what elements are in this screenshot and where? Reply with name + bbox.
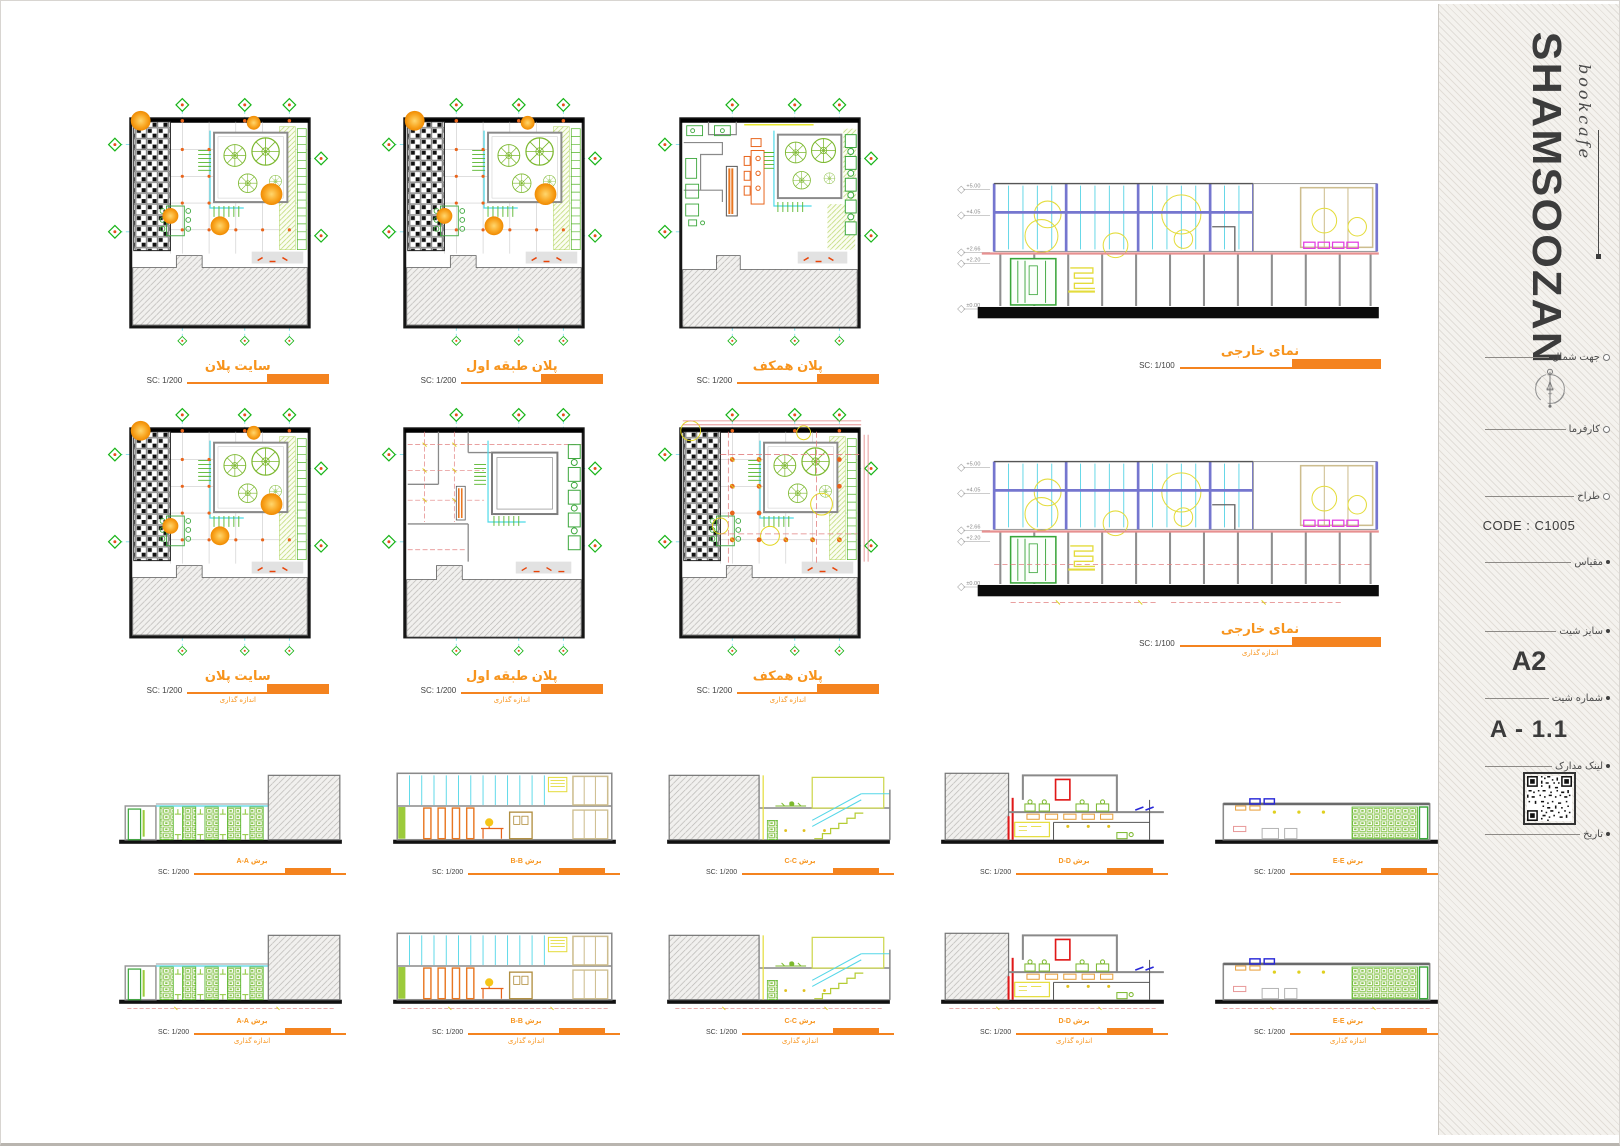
designer-code: CODE : C1005 [1439,518,1619,533]
caption-rule [468,868,620,875]
figure-scale: SC: 1/200 [432,1029,463,1036]
section-ee-drawing [1209,759,1444,853]
ground-floor-plan-dimensioned-drawing [653,405,881,663]
figure-subtitle: اندازه گذاری [158,1037,346,1045]
figure-scale: SC: 1/200 [706,1029,737,1036]
field-sheet-number: شماره شیت [1485,692,1610,704]
figure-title: برش C-C [706,1018,894,1027]
client-label: کارفرما [1569,424,1600,435]
figure-subtitle: اندازه گذاری [432,1037,620,1045]
figure-section-ee: برش E-E SC: 1/200 [1209,759,1444,875]
figure-scale: SC: 1/200 [697,376,733,385]
brand-script: bookcafe [1575,64,1594,161]
figure-title: برش D-D [980,1018,1168,1027]
figure-section-dd-dimensioned: برش D-D SC: 1/200 اندازه گذاری [935,919,1170,1045]
figure-caption: برش A-A SC: 1/200 [158,858,346,875]
title-block-sidebar: SHAMSOOZAN bookcafe جهت شمال کارفرما طرا… [1438,4,1619,1135]
figure-first-floor-plan: پلان طبقه اول SC: 1/200 [377,95,605,384]
caption-rule [1290,1028,1442,1035]
figure-caption: برش C-C SC: 1/200 [706,858,894,875]
caption-rule [468,1028,620,1035]
section-cc-drawing [661,759,896,853]
figure-title: برش D-D [980,858,1168,867]
figure-caption: برش D-D SC: 1/200 [980,858,1168,875]
figure-scale: SC: 1/200 [980,869,1011,876]
caption-rule [194,868,346,875]
figure-title: پلان همکف [697,668,879,684]
figure-subtitle: اندازه گذاری [421,696,603,704]
figure-scale: SC: 1/200 [147,686,183,695]
figure-section-aa: برش A-A SC: 1/200 [113,759,348,875]
figure-section-ee-dimensioned: برش E-E SC: 1/200 اندازه گذاری [1209,919,1444,1045]
figure-subtitle: اندازه گذاری [706,1037,894,1045]
site-plan-drawing [103,95,331,353]
field-designer: طراح [1485,490,1610,502]
figure-site-plan-dimensioned: سایت پلان SC: 1/200 اندازه گذاری [103,405,331,704]
field-client: کارفرما [1485,423,1610,435]
figure-scale: SC: 1/100 [1139,639,1175,648]
figure-caption: برش D-D SC: 1/200 اندازه گذاری [980,1018,1168,1045]
figure-scale: SC: 1/200 [432,869,463,876]
figure-caption: سایت پلان SC: 1/200 اندازه گذاری [147,668,329,704]
figure-first-floor-plan-dimensioned: پلان طبقه اول SC: 1/200 اندازه گذاری [377,405,605,704]
figure-caption: برش A-A SC: 1/200 اندازه گذاری [158,1018,346,1045]
ring-marker-icon [1603,493,1610,500]
section-ee-dimensioned-drawing [1209,919,1444,1013]
field-rule [1485,496,1574,497]
figure-ground-floor-plan-dimensioned: پلان همکف SC: 1/200 اندازه گذاری [653,405,881,704]
figure-caption: برش E-E SC: 1/200 [1254,858,1442,875]
caption-rule [742,868,894,875]
caption-rule [194,1028,346,1035]
figure-scale: SC: 1/200 [980,1029,1011,1036]
field-scale: مقیاس [1485,556,1610,568]
figure-title: برش E-E [1254,1018,1442,1027]
figure-site-plan: سایت پلان SC: 1/200 [103,95,331,384]
caption-rule [187,684,329,694]
field-rule [1485,562,1571,563]
figure-title: برش B-B [432,858,620,867]
figure-subtitle: اندازه گذاری [1139,649,1381,657]
brand-logo: SHAMSOOZAN [1523,32,1569,366]
figure-scale: SC: 1/200 [706,869,737,876]
exterior-elevation-drawing [953,163,1385,338]
sheet-size-value: A2 [1439,646,1619,677]
dot-marker-icon [1606,832,1610,836]
figure-title: سایت پلان [147,358,329,374]
figure-title: برش B-B [432,1018,620,1027]
figure-caption: پلان طبقه اول SC: 1/200 اندازه گذاری [421,668,603,704]
first-floor-plan-dimensioned-drawing [377,405,605,663]
figure-title: برش E-E [1254,858,1442,867]
section-aa-drawing [113,759,348,853]
figure-ground-floor-plan: پلان همکف SC: 1/200 [653,95,881,384]
figure-scale: SC: 1/200 [158,1029,189,1036]
section-dd-drawing [935,759,1170,853]
figure-caption: نمای خارجی SC: 1/100 اندازه گذاری [1139,621,1381,657]
figure-title: پلان طبقه اول [421,668,603,684]
figure-caption: پلان همکف SC: 1/200 اندازه گذاری [697,668,879,704]
figure-title: سایت پلان [147,668,329,684]
figure-section-aa-dimensioned: برش A-A SC: 1/200 اندازه گذاری [113,919,348,1045]
scale-label: مقیاس [1574,557,1603,568]
caption-rule [1290,868,1442,875]
dot-marker-icon [1606,696,1610,700]
figure-exterior-elevation-dimensioned: نمای خارجی SC: 1/100 اندازه گذاری [953,441,1385,657]
ring-marker-icon [1603,354,1610,361]
caption-rule [1016,1028,1168,1035]
figure-scale: SC: 1/200 [1254,869,1285,876]
field-date: تاریخ [1485,828,1610,840]
field-rule [1485,631,1556,632]
designer-label: طراح [1577,491,1600,502]
ground-floor-plan-drawing [653,95,881,353]
field-sheet-size: سایز شیت [1485,625,1610,637]
figure-caption: برش B-B SC: 1/200 اندازه گذاری [432,1018,620,1045]
figure-section-dd: برش D-D SC: 1/200 [935,759,1170,875]
figure-caption: برش C-C SC: 1/200 اندازه گذاری [706,1018,894,1045]
figure-title: پلان همکف [697,358,879,374]
figure-subtitle: اندازه گذاری [1254,1037,1442,1045]
figure-caption: پلان طبقه اول SC: 1/200 [421,358,603,384]
caption-rule [187,374,329,384]
figure-caption: نمای خارجی SC: 1/100 [1139,343,1381,369]
figure-section-cc: برش C-C SC: 1/200 [661,759,896,875]
figure-caption: سایت پلان SC: 1/200 [147,358,329,384]
caption-rule [461,374,603,384]
ring-marker-icon [1603,426,1610,433]
figure-caption: برش B-B SC: 1/200 [432,858,620,875]
figure-subtitle: اندازه گذاری [147,696,329,704]
section-dd-dimensioned-drawing [935,919,1170,1013]
site-plan-dimensioned-drawing [103,405,331,663]
figure-caption: پلان همکف SC: 1/200 [697,358,879,384]
date-label: تاریخ [1583,829,1603,840]
figure-title: برش A-A [158,858,346,867]
caption-rule [461,684,603,694]
figure-title: پلان طبقه اول [421,358,603,374]
figure-title: نمای خارجی [1139,343,1381,359]
field-north: جهت شمال [1485,351,1610,363]
field-rule [1485,429,1566,430]
field-rule [1485,698,1549,699]
figure-scale: SC: 1/200 [147,376,183,385]
field-documents-link: لینک مدارک [1485,760,1610,772]
exterior-elevation-dimensioned-drawing [953,441,1385,616]
caption-rule [1016,868,1168,875]
dot-marker-icon [1606,629,1610,633]
figure-section-bb: برش B-B SC: 1/200 [387,759,622,875]
figure-subtitle: اندازه گذاری [697,696,879,704]
caption-rule [1180,359,1381,369]
figure-scale: SC: 1/200 [158,869,189,876]
north-label: جهت شمال [1552,352,1600,363]
section-bb-dimensioned-drawing [387,919,622,1013]
brand-rule [1598,130,1599,254]
sheet-number-label: شماره شیت [1552,693,1603,704]
sheet-number-value: A - 1.1 [1439,716,1619,744]
field-rule [1485,357,1549,358]
figure-subtitle: اندازه گذاری [980,1037,1168,1045]
figure-scale: SC: 1/200 [1254,1029,1285,1036]
drawing-sheet: +5.00 +4.05 +2.66 +2.20 ±0.00 [0,0,1620,1146]
section-bb-drawing [387,759,622,853]
caption-rule [742,1028,894,1035]
figure-title: برش A-A [158,1018,346,1027]
figure-exterior-elevation: نمای خارجی SC: 1/100 [953,163,1385,369]
figure-section-cc-dimensioned: برش C-C SC: 1/200 اندازه گذاری [661,919,896,1045]
caption-rule [1180,637,1381,647]
figure-title: برش C-C [706,858,894,867]
dot-marker-icon [1606,764,1610,768]
section-cc-dimensioned-drawing [661,919,896,1013]
documents-link-label: لینک مدارک [1555,761,1603,772]
figure-scale: SC: 1/200 [421,686,457,695]
caption-rule [737,374,879,384]
caption-rule [737,684,879,694]
field-rule [1485,766,1552,767]
figure-title: نمای خارجی [1139,621,1381,637]
figure-caption: برش E-E SC: 1/200 اندازه گذاری [1254,1018,1442,1045]
north-compass-icon [1527,366,1573,412]
first-floor-plan-drawing [377,95,605,353]
dot-marker-icon [1606,560,1610,564]
figure-scale: SC: 1/200 [697,686,733,695]
qr-code [1527,776,1572,821]
section-aa-dimensioned-drawing [113,919,348,1013]
sheet-size-label: سایز شیت [1559,626,1603,637]
figure-scale: SC: 1/200 [421,376,457,385]
figure-scale: SC: 1/100 [1139,361,1175,370]
field-rule [1485,834,1580,835]
figure-section-bb-dimensioned: برش B-B SC: 1/200 اندازه گذاری [387,919,622,1045]
